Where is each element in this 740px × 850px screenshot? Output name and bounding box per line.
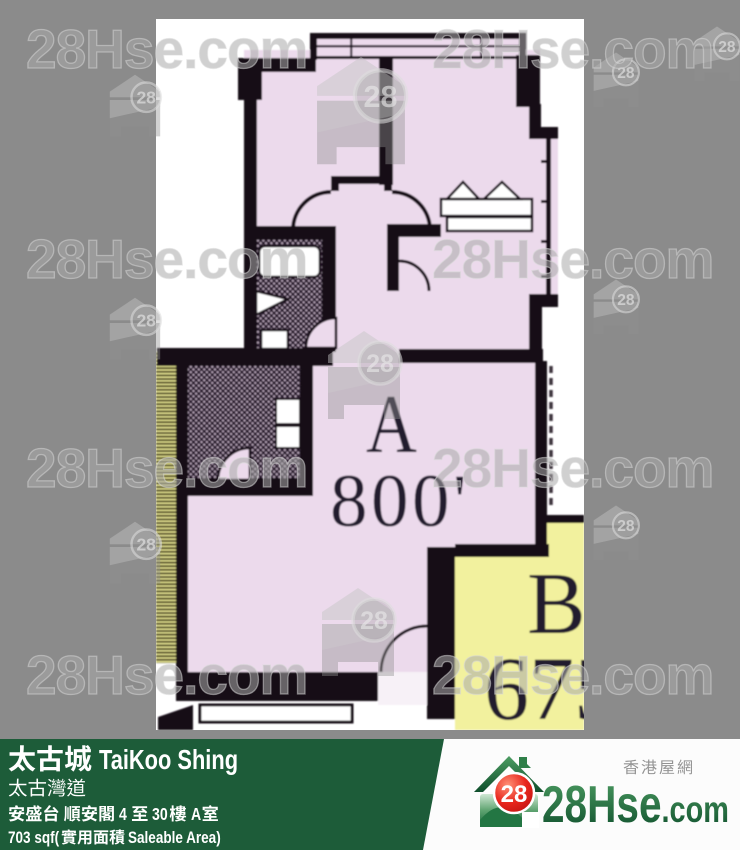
svg-text:28Hse.com: 28Hse.com (26, 644, 307, 706)
svg-text:703 sqf(: 703 sqf( (8, 829, 59, 848)
svg-text:28Hse.com: 28Hse.com (26, 228, 307, 290)
svg-text:28Hse.com: 28Hse.com (26, 437, 307, 499)
svg-text:30: 30 (152, 806, 168, 825)
svg-text:4: 4 (119, 806, 127, 825)
svg-text:28: 28 (136, 88, 156, 108)
svg-text:28: 28 (360, 607, 388, 635)
svg-text:Saleable Area): Saleable Area) (128, 829, 221, 848)
svg-text:28: 28 (364, 80, 398, 114)
svg-text:28: 28 (136, 535, 156, 555)
svg-text:28: 28 (366, 350, 394, 378)
svg-text:28: 28 (617, 518, 635, 535)
svg-text:28Hse.com: 28Hse.com (26, 18, 307, 80)
svg-text:28Hse.com: 28Hse.com (432, 437, 713, 499)
svg-text:28Hse.com: 28Hse.com (432, 228, 713, 290)
svg-text:B: B (527, 556, 586, 653)
svg-text:A: A (191, 806, 201, 825)
svg-text:TaiKoo Shing: TaiKoo Shing (99, 744, 238, 775)
svg-text:28: 28 (501, 781, 528, 808)
svg-text:28: 28 (136, 311, 156, 331)
svg-text:28Hse.com: 28Hse.com (432, 644, 713, 706)
svg-text:28: 28 (718, 39, 736, 56)
svg-text:28Hse.com: 28Hse.com (432, 18, 713, 80)
svg-text:28: 28 (617, 292, 635, 309)
